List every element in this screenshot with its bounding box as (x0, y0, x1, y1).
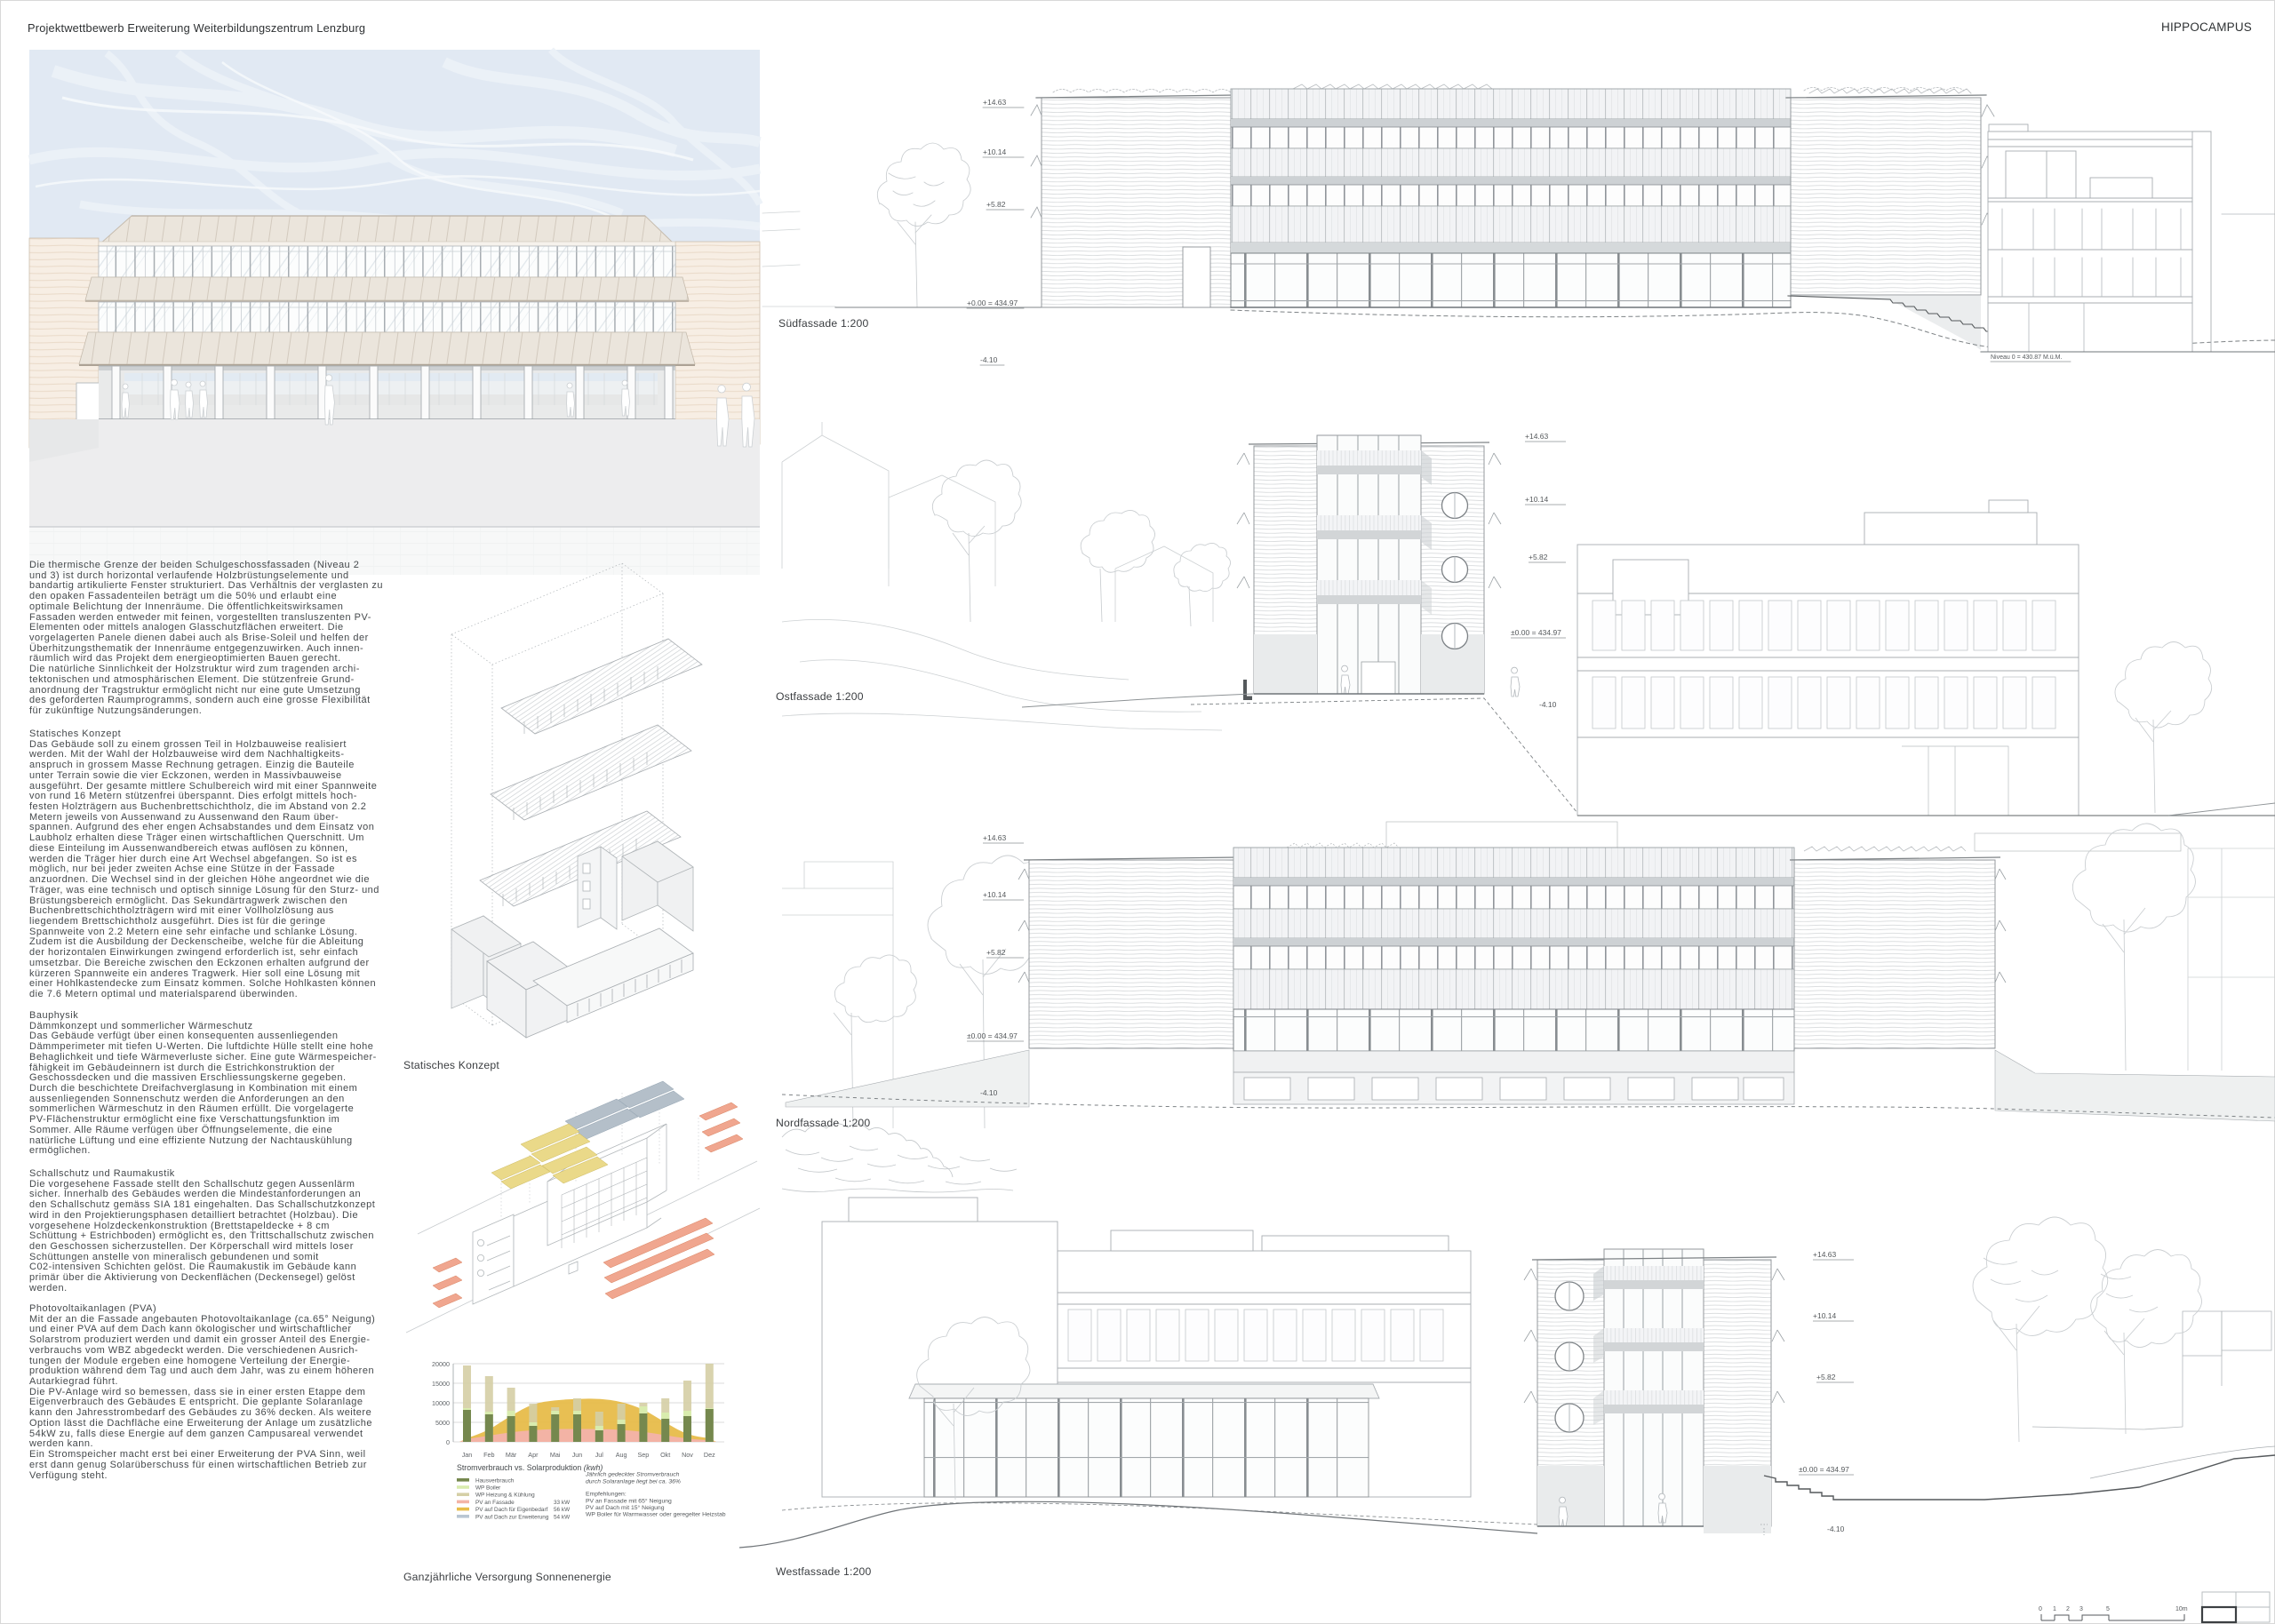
svg-text:PV an Fassade mit 65° Neigung: PV an Fassade mit 65° Neigung (586, 1498, 672, 1505)
svg-text:Jul: Jul (595, 1451, 604, 1459)
svg-text:Jun: Jun (572, 1451, 583, 1459)
svg-text:1: 1 (2053, 1606, 2056, 1612)
svg-text:PV an Fassade: PV an Fassade (475, 1500, 515, 1506)
svg-text:Aug: Aug (616, 1451, 627, 1459)
svg-text:5: 5 (2106, 1606, 2110, 1612)
svg-text:Nov: Nov (682, 1451, 693, 1459)
svg-text:5000: 5000 (435, 1419, 450, 1427)
svg-text:PV auf Dach für Eigenbedarf: PV auf Dach für Eigenbedarf (475, 1507, 548, 1513)
svg-text:PV auf Dach mit 15° Neigung: PV auf Dach mit 15° Neigung (586, 1504, 665, 1511)
svg-text:-4.10: -4.10 (980, 355, 998, 364)
svg-text:Niveau 0 = 430.87 M.ü.M.: Niveau 0 = 430.87 M.ü.M. (1991, 354, 2062, 361)
svg-text:+10.14: +10.14 (983, 890, 1007, 899)
svg-text:Jährlich gedeckter Stromverbra: Jährlich gedeckter Stromverbrauch (585, 1472, 680, 1478)
svg-text:±0.00 = 434.97: ±0.00 = 434.97 (1799, 1465, 1849, 1474)
svg-text:PV auf Dach zur Erweiterung: PV auf Dach zur Erweiterung (475, 1514, 549, 1520)
svg-text:0: 0 (2039, 1606, 2042, 1612)
svg-text:54 kW: 54 kW (554, 1514, 571, 1520)
svg-text:Dez: Dez (704, 1451, 715, 1459)
svg-text:+14.63: +14.63 (1813, 1250, 1837, 1259)
svg-text:+5.82: +5.82 (1529, 553, 1548, 561)
svg-text:+10.14: +10.14 (1525, 495, 1549, 504)
svg-text:Sep: Sep (638, 1451, 650, 1459)
svg-text:10000: 10000 (432, 1399, 450, 1407)
svg-text:Feb: Feb (483, 1451, 494, 1459)
svg-text:WP Heizung & Kühlung: WP Heizung & Kühlung (475, 1493, 535, 1499)
svg-text:56 kW: 56 kW (554, 1507, 571, 1513)
svg-text:33 kW: 33 kW (554, 1500, 571, 1506)
svg-text:+0.00 = 434.97: +0.00 = 434.97 (967, 299, 1018, 307)
svg-text:Mär: Mär (506, 1451, 517, 1459)
svg-text:Empfehlungen:: Empfehlungen: (586, 1492, 627, 1498)
svg-text:Stromverbrauch vs. Solarproduk: Stromverbrauch vs. Solarproduktion (kwh) (457, 1463, 603, 1472)
svg-text:Apr: Apr (528, 1451, 539, 1459)
svg-text:+5.82: +5.82 (1816, 1373, 1836, 1381)
svg-text:10m: 10m (2175, 1606, 2188, 1612)
svg-text:Jan: Jan (462, 1451, 473, 1459)
svg-text:Mai: Mai (550, 1451, 561, 1459)
svg-text:Hausverbrauch: Hausverbrauch (475, 1477, 515, 1484)
svg-text:20000: 20000 (432, 1360, 450, 1368)
svg-text:-4.10: -4.10 (1827, 1524, 1845, 1533)
svg-text:-4.10: -4.10 (1539, 700, 1557, 709)
svg-text:WP Boiler: WP Boiler (475, 1485, 501, 1492)
svg-text:+14.63: +14.63 (983, 98, 1007, 107)
svg-text:durch Solaranlage liegt bei ca: durch Solaranlage liegt bei ca. 36% (586, 1479, 681, 1485)
svg-text:+5.82: +5.82 (986, 200, 1006, 209)
svg-text:±0.00 = 434.97: ±0.00 = 434.97 (967, 1031, 1018, 1040)
svg-text:2: 2 (2066, 1606, 2070, 1612)
svg-text:+5.82: +5.82 (986, 948, 1006, 957)
svg-text:+10.14: +10.14 (1813, 1311, 1837, 1320)
svg-text:15000: 15000 (432, 1380, 450, 1388)
svg-text:+10.14: +10.14 (983, 147, 1007, 156)
svg-text:+14.63: +14.63 (983, 833, 1007, 842)
svg-text:WP Boiler für Warmwasser oder: WP Boiler für Warmwasser oder geregelter… (586, 1512, 726, 1518)
svg-text:0: 0 (446, 1438, 450, 1446)
svg-text:+14.63: +14.63 (1525, 432, 1549, 441)
svg-text:Okt: Okt (660, 1451, 670, 1459)
svg-text:3: 3 (2079, 1606, 2083, 1612)
svg-text:-4.10: -4.10 (980, 1088, 998, 1097)
svg-text:±0.00 = 434.97: ±0.00 = 434.97 (1511, 628, 1561, 637)
